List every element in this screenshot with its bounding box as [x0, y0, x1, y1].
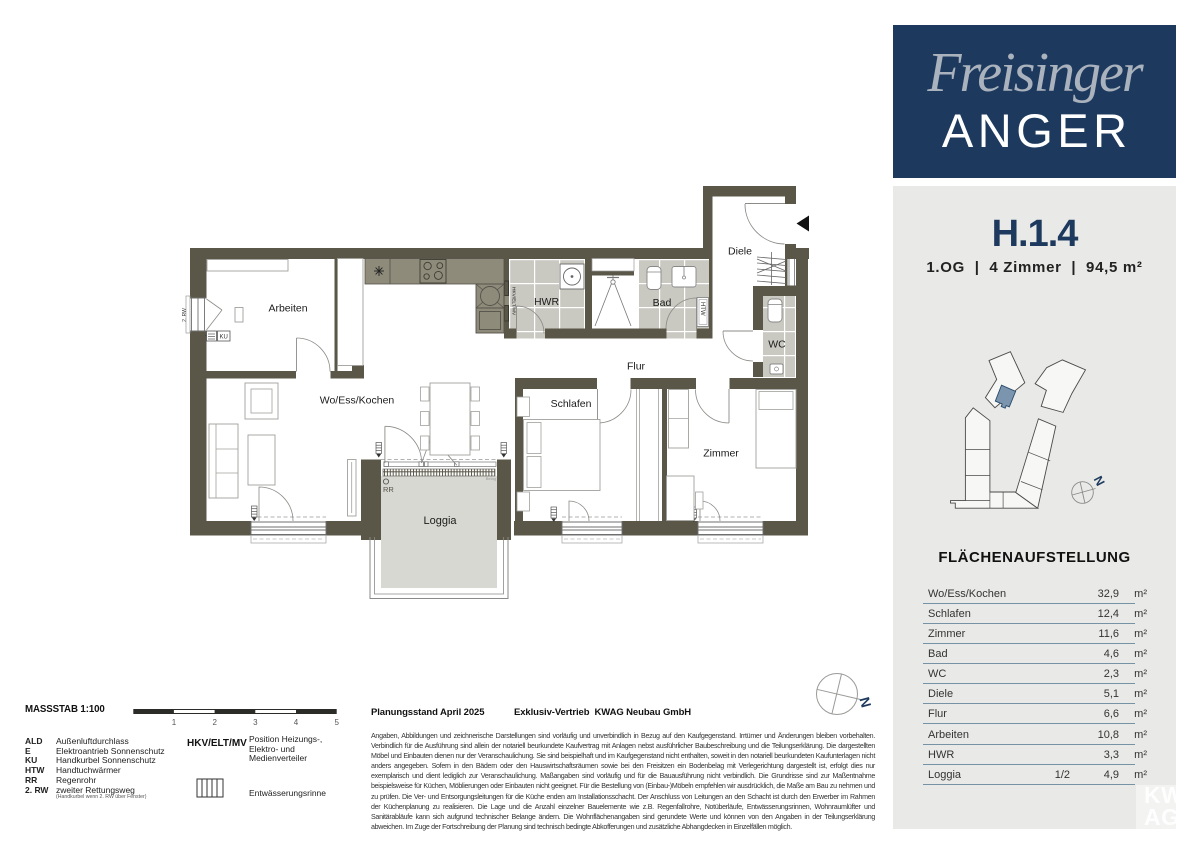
svg-text:Loggia: Loggia — [423, 515, 457, 527]
svg-text:KU: KU — [220, 335, 228, 341]
svg-text:N: N — [1091, 474, 1108, 489]
svg-text:WC: WC — [768, 339, 786, 351]
svg-text:3: 3 — [253, 718, 258, 727]
svg-text:Schlafen: Schlafen — [551, 398, 592, 410]
svg-text:RR: RR — [383, 485, 394, 494]
svg-text:Bad: Bad — [653, 297, 672, 309]
svg-text:2: 2 — [212, 718, 217, 727]
svg-text:Diele: Diele — [728, 246, 752, 258]
svg-text:4: 4 — [294, 718, 299, 727]
svg-text:Flur: Flur — [627, 361, 646, 373]
svg-text:N: N — [857, 695, 875, 709]
svg-text:Wo/Ess/Kochen: Wo/Ess/Kochen — [320, 395, 395, 407]
svg-text:HWR: HWR — [534, 296, 559, 308]
svg-text:Belag: Belag — [486, 476, 496, 481]
svg-text:Arbeiten: Arbeiten — [268, 303, 307, 315]
svg-text:1: 1 — [172, 718, 177, 727]
svg-text:HTW: HTW — [699, 302, 705, 316]
svg-text:HKV/ELT/MV: HKV/ELT/MV — [511, 287, 517, 316]
svg-text:Zimmer: Zimmer — [703, 448, 739, 460]
svg-text:5: 5 — [334, 718, 339, 727]
